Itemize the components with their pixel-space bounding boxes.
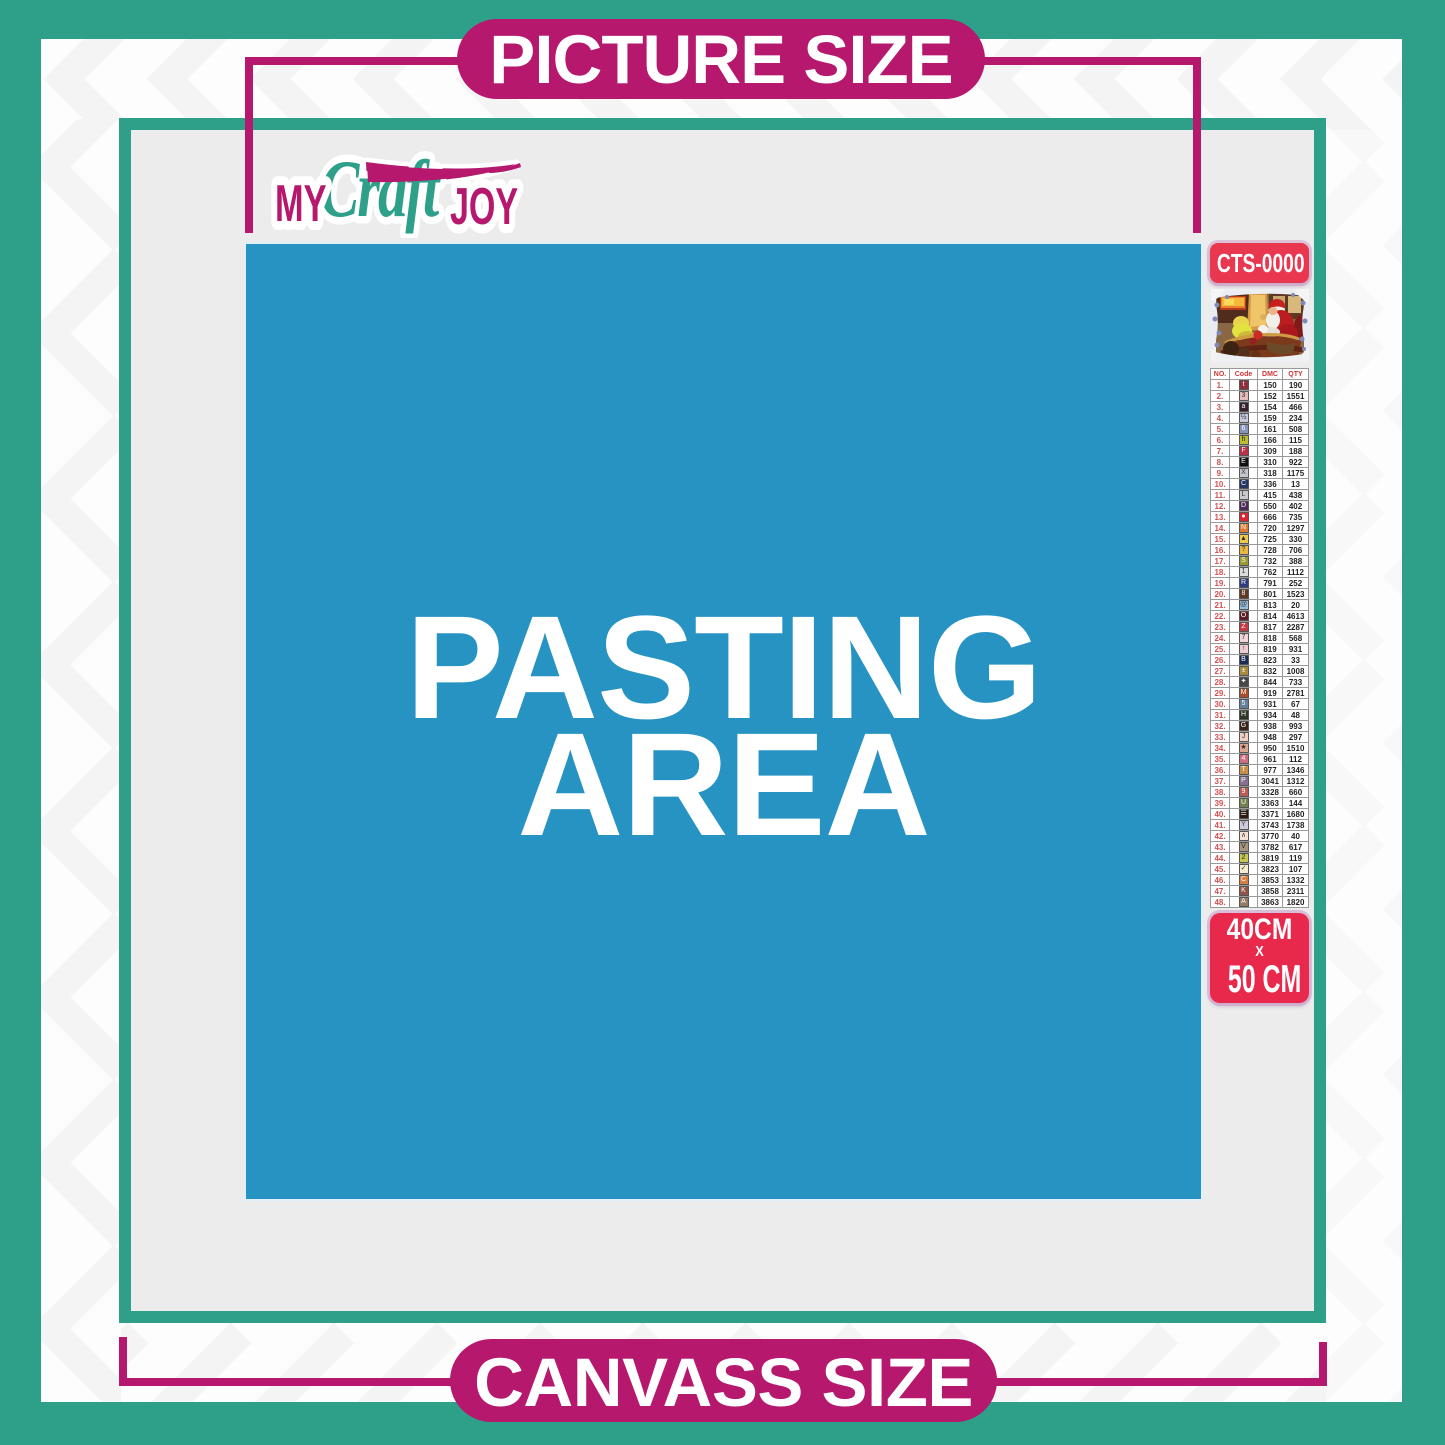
svg-text:Craft: Craft: [320, 144, 441, 235]
svg-text:MY: MY: [275, 175, 326, 233]
svg-text:JOY: JOY: [450, 178, 518, 236]
